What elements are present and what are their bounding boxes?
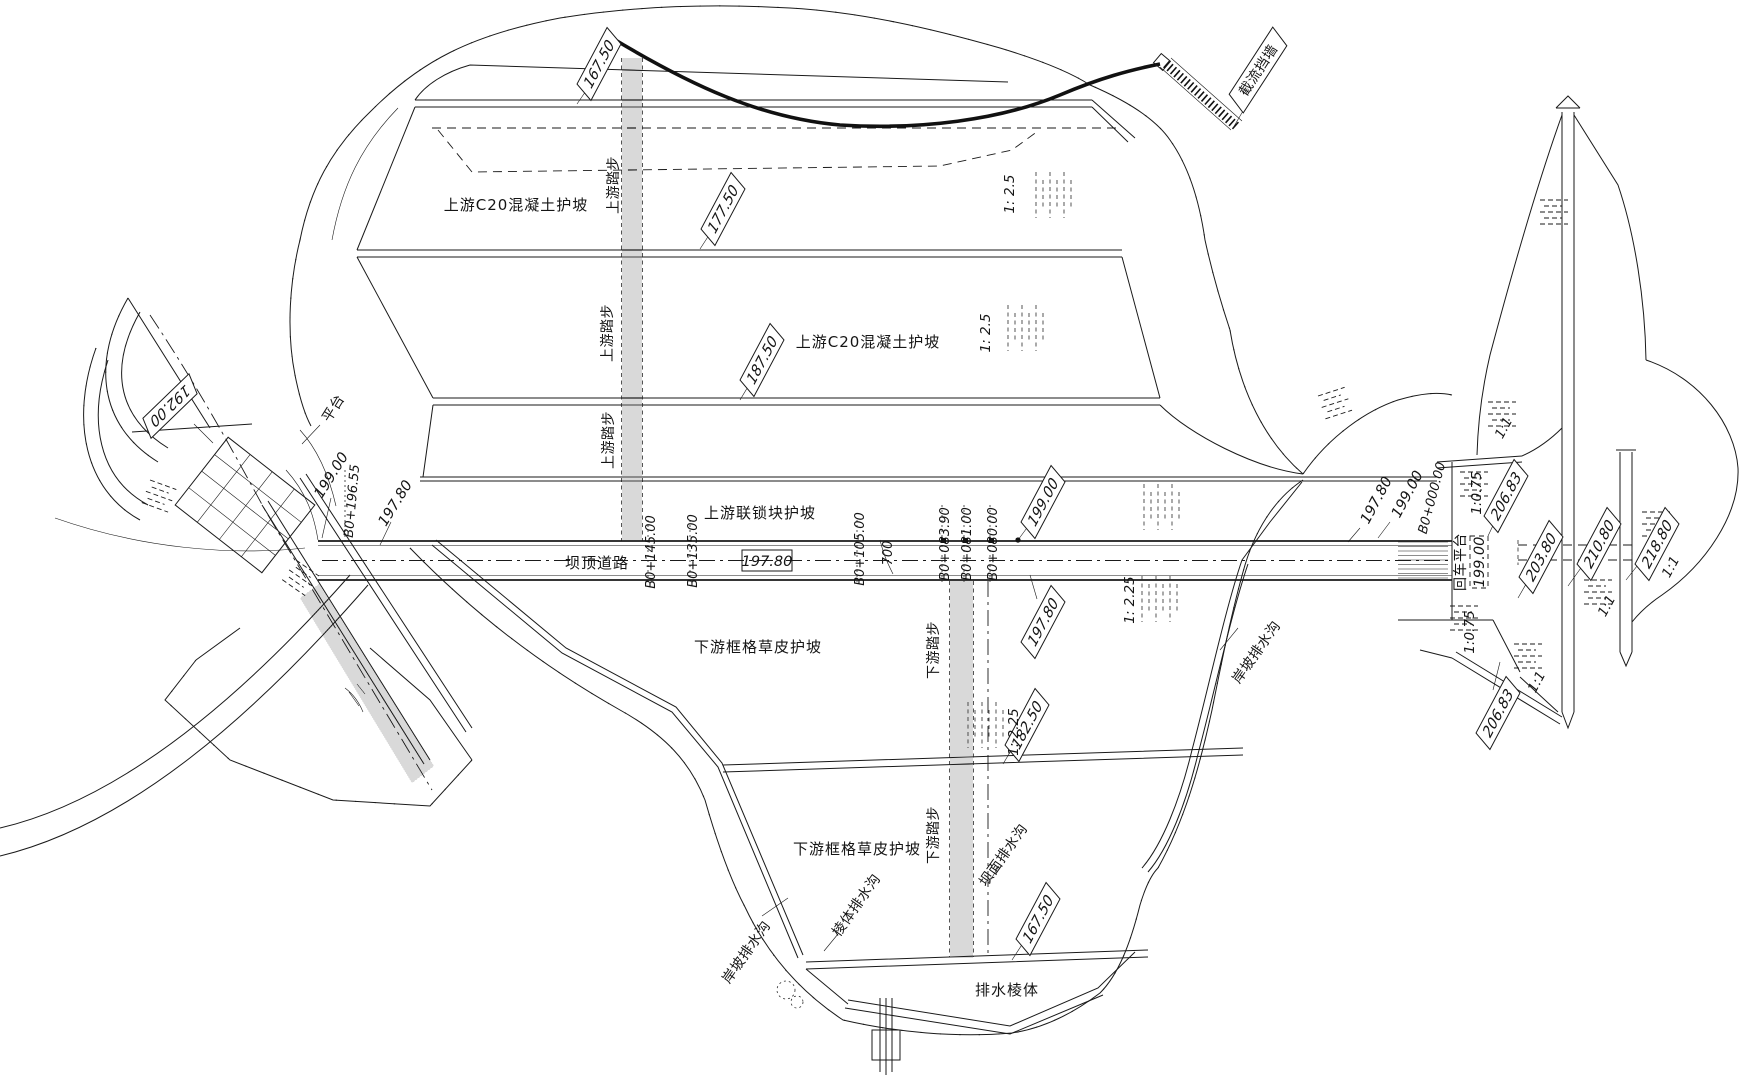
upstream-steps-strip xyxy=(622,58,642,542)
slope-ds-lower: 1: 2.25 xyxy=(1006,708,1022,756)
flag-spillway-wing-value: 192.00 xyxy=(147,381,193,430)
crest-elevation-value: 197.80 xyxy=(742,554,793,570)
station-b0-135: B0+135.00 xyxy=(686,514,701,588)
flag-ds-berm-lower: 167.50 xyxy=(1012,883,1063,956)
slope-right-075-lower: 1:0.75 xyxy=(1462,610,1478,653)
dam-plan-sheet: 167.50 177.50 187.50 199.00 197.80 182.5… xyxy=(0,0,1741,1079)
flag-wall-crest: 210.80 xyxy=(1573,508,1624,581)
station-b0-000: B0+000.00 xyxy=(1416,461,1450,536)
slope-right-075-upper: 1:0.75 xyxy=(1469,471,1485,514)
label-drain-dam-face: 坝面排水沟 xyxy=(976,821,1031,890)
station-b0-105: B0+105.00 xyxy=(853,512,868,586)
crest-road xyxy=(318,470,1452,585)
slope-ds-upper: 1: 2.25 xyxy=(1122,576,1138,624)
label-drain-prism-ditch: 棱体排水沟 xyxy=(829,871,884,940)
label-us-steps-3: 上游踏步 xyxy=(601,411,617,469)
flag-us-berm-low: 187.50 xyxy=(736,324,787,397)
label-us-interlock: 上游联锁块护坡 xyxy=(704,504,816,522)
label-us-concrete-1: 上游C20混凝土护坡 xyxy=(444,196,589,214)
text-labels: 上游C20混凝土护坡 上游C20混凝土护坡 上游联锁块护坡 坝顶道路 下游框格草… xyxy=(312,156,1684,999)
left-spillway-structure xyxy=(0,298,472,856)
label-ds-steps-2: 下游踏步 xyxy=(926,806,942,864)
elevation-flags: 167.50 177.50 187.50 199.00 197.80 182.5… xyxy=(137,27,1683,955)
station-b0-083: B0+083.90 xyxy=(938,507,953,581)
flag-crest-ds-edge: 197.80 xyxy=(1017,586,1068,659)
station-b0-196: B0+196.55 xyxy=(342,464,363,539)
label-us-steps-1: 上游踏步 xyxy=(606,156,622,214)
flag-closure-wall: 截流挡墙 xyxy=(1225,27,1291,113)
station-b0-080: B0+080.00 xyxy=(986,507,1001,581)
flag-right-abut-lower: 206.83 xyxy=(1472,677,1523,750)
flag-crest-us-edge: 199.00 xyxy=(1017,466,1068,539)
flag-us-berm-mid: 177.50 xyxy=(697,173,748,246)
flag-culvert-floor: 203.80 xyxy=(1515,521,1566,594)
label-ds-steps-1: 下游踏步 xyxy=(926,621,942,679)
label-drain-bank-left: 岸坡排水沟 xyxy=(719,918,774,987)
slope-right-11-b: 1:1 xyxy=(1525,669,1549,696)
label-us-steps-2: 上游踏步 xyxy=(600,304,616,362)
dam-plan-drawing: 167.50 177.50 187.50 199.00 197.80 182.5… xyxy=(0,0,1741,1079)
label-ds-grass-2: 下游框格草皮护坡 xyxy=(793,840,921,858)
label-crest-road: 坝顶道路 xyxy=(565,554,629,572)
slope-right-11-d: 1:1 xyxy=(1659,554,1683,581)
station-b0-145: B0+145.00 xyxy=(644,515,659,589)
spillway-chute-strip xyxy=(300,584,434,783)
downstream-steps-strip xyxy=(950,581,973,958)
label-drain-prism-body: 排水棱体 xyxy=(975,981,1039,999)
steps-strips xyxy=(300,58,988,958)
slope-right-11-a: 1:1 xyxy=(1492,415,1516,442)
crest-width-dim: 700 xyxy=(881,541,896,566)
slope-us-upper: 1: 2.5 xyxy=(1002,175,1018,214)
turn-platform-elevation: 199.00 xyxy=(1472,537,1488,588)
slope-right-11-c: 1:1 xyxy=(1595,593,1619,620)
label-platform: 平台 xyxy=(319,392,348,425)
flag-us-berm-top: 167.50 xyxy=(573,28,624,101)
station-b0-081: B0+081.00 xyxy=(960,507,975,581)
label-us-concrete-2: 上游C20混凝土护坡 xyxy=(796,333,941,351)
spot-right-crest: 197.80 xyxy=(1358,474,1396,526)
label-ds-grass-1: 下游框格草皮护坡 xyxy=(694,638,822,656)
label-turn-platform: 回车平台 xyxy=(1452,533,1469,591)
spot-left-crest: 197.80 xyxy=(376,478,416,530)
right-abutment-structure xyxy=(1318,96,1738,728)
flag-spillway-wing: 192.00 xyxy=(137,374,203,438)
upstream-face xyxy=(357,38,1437,530)
slope-us-lower: 1: 2.5 xyxy=(978,314,994,353)
